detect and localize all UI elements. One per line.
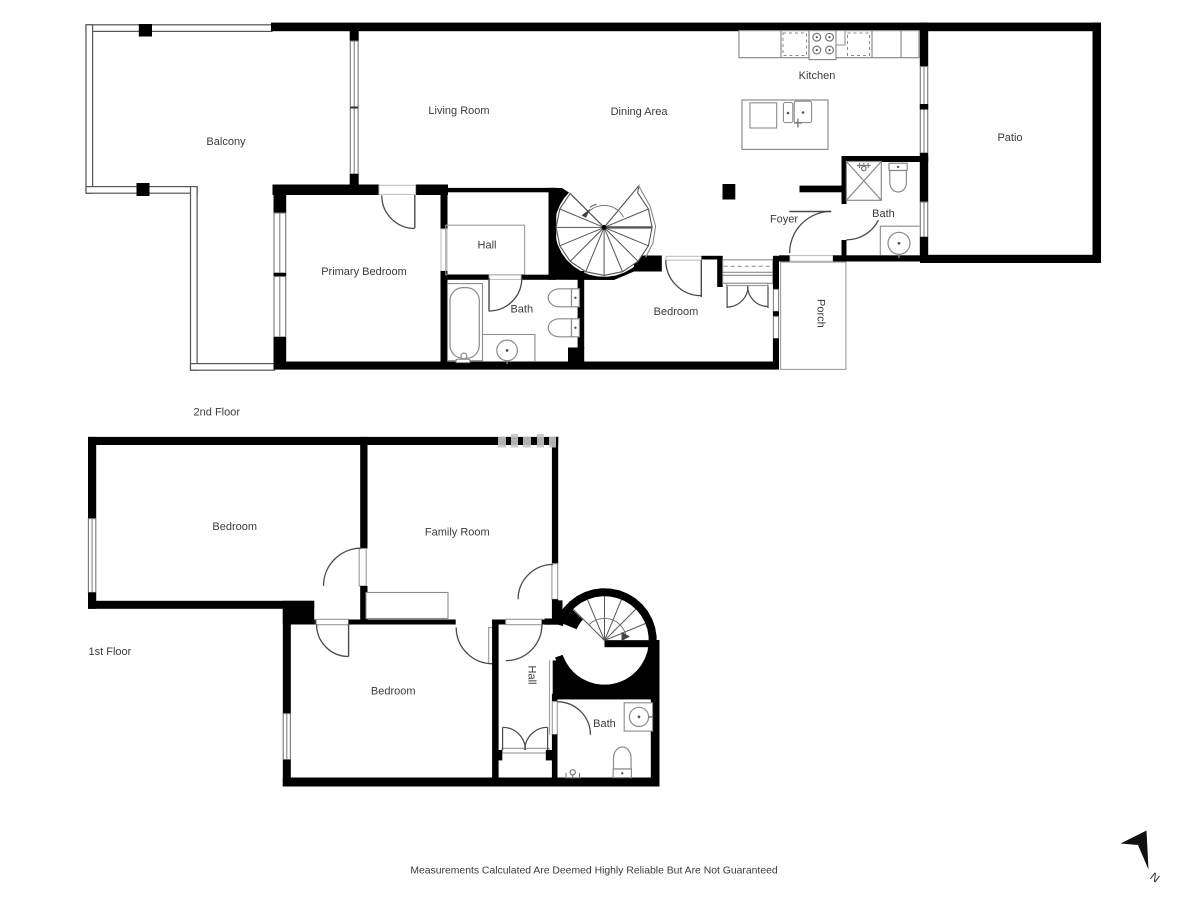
- svg-text:Bath: Bath: [510, 304, 533, 316]
- svg-text:Bedroom: Bedroom: [212, 521, 257, 533]
- svg-text:Bedroom: Bedroom: [371, 686, 416, 698]
- svg-text:Family Room: Family Room: [425, 527, 490, 539]
- svg-text:Patio: Patio: [997, 132, 1022, 144]
- svg-text:1st Floor: 1st Floor: [89, 646, 132, 658]
- svg-text:Dining Area: Dining Area: [611, 106, 669, 118]
- svg-text:Primary Bedroom: Primary Bedroom: [321, 266, 407, 278]
- svg-text:Porch: Porch: [815, 299, 827, 328]
- svg-text:Measurements Calculated Are De: Measurements Calculated Are Deemed Highl…: [410, 866, 778, 877]
- svg-text:Hall: Hall: [526, 666, 538, 685]
- svg-text:Bath: Bath: [872, 208, 895, 220]
- svg-text:Living Room: Living Room: [428, 105, 489, 117]
- svg-text:Bath: Bath: [593, 718, 616, 730]
- svg-text:2nd Floor: 2nd Floor: [194, 407, 241, 419]
- svg-text:Bedroom: Bedroom: [654, 306, 699, 318]
- svg-text:Balcony: Balcony: [206, 136, 246, 148]
- svg-text:Foyer: Foyer: [770, 214, 798, 226]
- svg-text:Kitchen: Kitchen: [799, 70, 836, 82]
- svg-text:Hall: Hall: [478, 240, 497, 252]
